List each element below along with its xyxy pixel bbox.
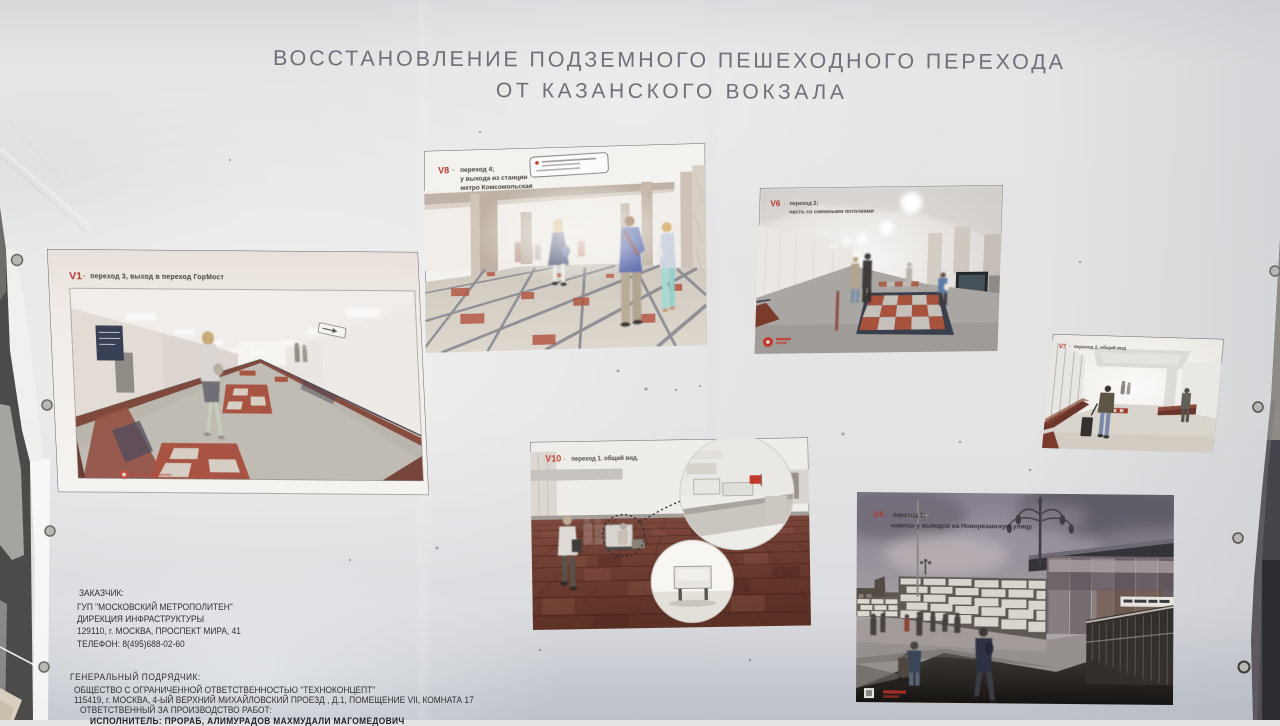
svg-text:V1: V1: [69, 270, 83, 282]
svg-text:переход 1;: переход 1;: [893, 512, 925, 519]
svg-text:V4: V4: [873, 509, 884, 519]
svg-text:V8: V8: [438, 165, 449, 175]
svg-text:часть со смежными потолками: часть со смежными потолками: [789, 209, 874, 216]
svg-text:переход 3, выход в переход Гор: переход 3, выход в переход ГорМост: [90, 273, 225, 281]
svg-text:V7: V7: [1058, 344, 1067, 350]
svg-text:переход 4;: переход 4;: [460, 166, 494, 174]
svg-text:-: -: [783, 201, 785, 207]
svg-text:переход 2;: переход 2;: [789, 201, 818, 207]
svg-text:-: -: [886, 512, 888, 519]
svg-text:переход 1. общий вид.: переход 1. общий вид.: [571, 455, 639, 463]
svg-text:навесы у выходов на Новорязанс: навесы у выходов на Новорязанскую улицу: [891, 522, 1033, 530]
svg-text:-: -: [563, 456, 565, 463]
svg-text:V10: V10: [545, 453, 561, 463]
svg-text:ВОССТАНОВЛЕНИЕ ПОДЗЕМНОГО ПЕШЕ: ВОССТАНОВЛЕНИЕ ПОДЗЕМНОГО ПЕШЕХОДНОГО ПЕ…: [273, 46, 1064, 74]
svg-text:V6: V6: [770, 199, 781, 208]
svg-text:ОТ КАЗАНСКОГО ВОКЗАЛА: ОТ КАЗАНСКОГО ВОКЗАЛА: [496, 79, 844, 104]
